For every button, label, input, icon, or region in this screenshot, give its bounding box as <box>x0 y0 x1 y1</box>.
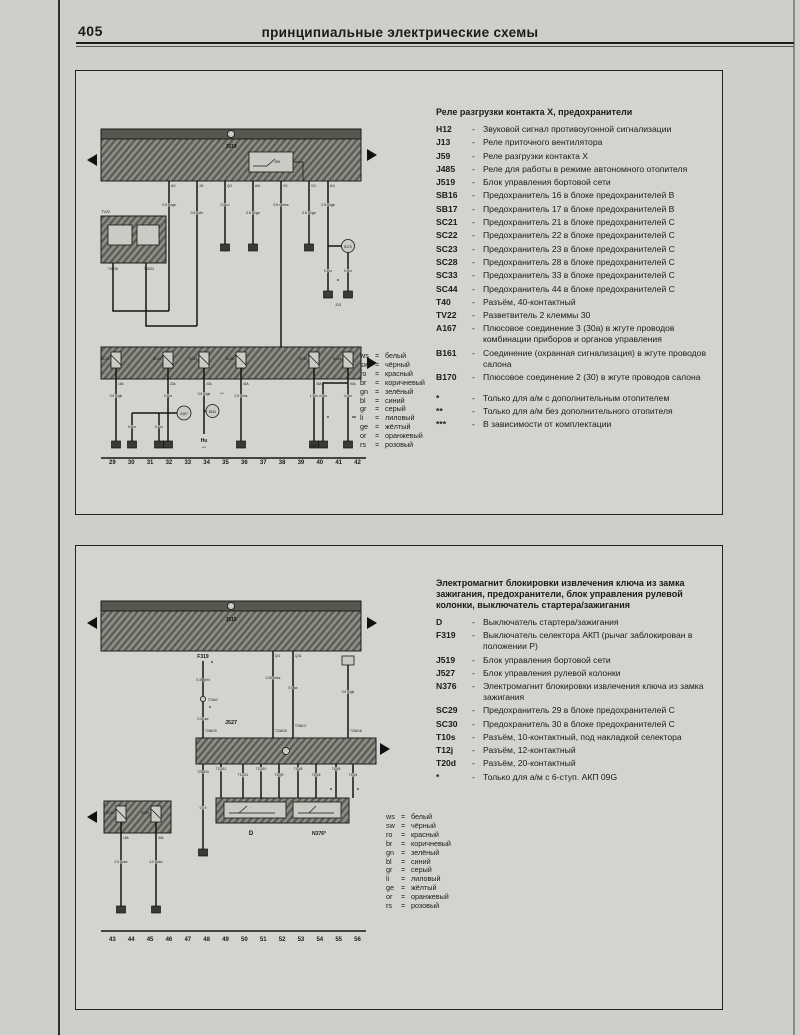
wire-label: 2.5 ro/sw <box>115 860 129 864</box>
legend-dash: - <box>472 270 483 281</box>
svg-text:F319: F319 <box>197 654 209 660</box>
legend-desc: Блок управления бортовой сети <box>483 655 720 666</box>
wire-color-code: rs <box>360 441 375 450</box>
track-number: 49 <box>222 937 229 943</box>
fuse-label: SC23 <box>189 357 197 361</box>
wire-label: 0.5 ro/ge <box>246 211 260 215</box>
legend-dash: - <box>472 668 483 679</box>
legend-title: Реле разгрузки контакта X, предохранител… <box>436 107 720 118</box>
wire-label: 1.5 ro <box>310 394 318 398</box>
legend-row: D - Выключатель стартера/зажигания <box>436 617 720 628</box>
fuse-amp: 50A <box>350 382 357 386</box>
svg-text:*: * <box>337 279 339 285</box>
wire-label: 0.35 ro/ws <box>266 676 281 680</box>
note-mark: *** <box>436 419 472 430</box>
track-number: 50 <box>241 937 248 943</box>
continuation-arrow-right-icon <box>367 617 377 629</box>
legend-desc: Реле разгрузки контакта X <box>483 151 720 162</box>
legend-dash: - <box>472 772 483 783</box>
wiring-diagram-1: J519 J59 A/1 J/3 Q/1 A/6 V/1 V/2 A/4 <box>81 86 391 506</box>
legend-row: SC22 - Предохранитель 22 в блоке предохр… <box>436 230 720 241</box>
wire-color-row: rs = розовый <box>360 441 425 450</box>
wire-color-name: розовый <box>411 902 439 911</box>
legend-desc: Разъём, 10-контактный, под накладкой сел… <box>483 732 720 743</box>
legend-row: B170 - Плюсовое соединение 2 (30) в жгут… <box>436 372 720 383</box>
left-drop <box>199 764 208 856</box>
note-desc: Только для а/м с дополнительным отопител… <box>483 393 720 404</box>
legend-desc: Электромагнит блокировки извлечения ключ… <box>483 681 720 703</box>
connector-label: T10s/2 <box>208 698 218 702</box>
legend-dash: - <box>472 406 483 417</box>
variant-mark: * <box>330 788 332 794</box>
terminal-box <box>237 441 246 448</box>
terminal-box <box>164 441 173 448</box>
legend-dash: - <box>472 137 483 148</box>
wire-color-legend: ws = белый sw = чёрный ro = красный br =… <box>360 352 425 450</box>
fuse-band: SC21 SC22 SC23 SC28 SC33 SC44 15A 23A 23… <box>101 347 377 386</box>
track-number: 48 <box>203 937 210 943</box>
terminal-box <box>128 441 137 448</box>
legend-desc: Выключатель стартера/зажигания <box>483 617 720 628</box>
wire-label: 0.5 ro/ge <box>302 211 316 215</box>
continuation-arrow-right-icon <box>367 149 377 161</box>
legend-2: Электромагнит блокировки извлечения ключ… <box>436 578 720 785</box>
legend-row: SC21 - Предохранитель 21 в блоке предохр… <box>436 217 720 228</box>
legend-desc: Предохранитель 16 в блоке предохранителе… <box>483 190 720 201</box>
legend-dash: - <box>472 257 483 268</box>
relay-j485-label: J485 <box>309 444 317 448</box>
legend-desc: Соединение (охранная сигнализация) в жгу… <box>483 348 720 370</box>
legend-entries: H12 - Звуковой сигнал противоугонной сиг… <box>436 124 720 383</box>
terminal-box <box>344 291 353 298</box>
fuse-label: SC29 <box>106 811 114 815</box>
legend-term: J485 <box>436 164 472 175</box>
variant-mark: ** <box>352 416 356 422</box>
track-number: 56 <box>354 937 361 943</box>
legend-term: SC29 <box>436 705 472 716</box>
legend-term: T10s <box>436 732 472 743</box>
legend-desc: Разъём, 40-контактный <box>483 297 720 308</box>
connector-label: T12j/11 <box>238 773 249 777</box>
legend-dash: - <box>472 310 483 321</box>
wire-label: 4.0 ro <box>344 394 352 398</box>
svg-text:0.5 ro: 0.5 ro <box>344 269 352 273</box>
pin-label: A/4 <box>330 184 335 188</box>
wire-color-code: rs <box>386 902 401 911</box>
fuse-label: SC44 <box>333 357 341 361</box>
legend-desc: Предохранитель 33 в блоке предохранителе… <box>483 270 720 281</box>
legend-row: T20d - Разъём, 20-контактный <box>436 758 720 769</box>
legend-dash: - <box>472 190 483 201</box>
track-numbers: 2930313233343536373839404142 <box>109 460 361 466</box>
continuation-arrow-right-icon <box>380 743 390 755</box>
legend-term: T12j <box>436 745 472 756</box>
terminal-box <box>344 441 353 448</box>
connector-label: T12j/4 <box>349 773 358 777</box>
band-wires <box>113 181 348 347</box>
legend-row: T40 - Разъём, 40-контактный <box>436 297 720 308</box>
legend-term: SC23 <box>436 244 472 255</box>
legend-dash: - <box>472 164 483 175</box>
wire-color-name: розовый <box>385 441 413 450</box>
track-number: 43 <box>109 937 116 943</box>
track-number: 30 <box>128 460 135 466</box>
legend-term: SC28 <box>436 257 472 268</box>
svg-text:A167: A167 <box>180 412 188 416</box>
variant-mark: * <box>211 661 213 667</box>
connector-label: T12j/8 <box>294 767 303 771</box>
pin-label: A/6 <box>255 184 260 188</box>
legend-term: T20d <box>436 758 472 769</box>
fuse-amp: 35A <box>316 382 323 386</box>
legend-dash: - <box>472 230 483 241</box>
track-number: 31 <box>147 460 154 466</box>
fuse-amp: 30A <box>158 836 165 840</box>
legend-desc: Блок управления бортовой сети <box>483 177 720 188</box>
legend-desc: Предохранитель 29 в блоке предохранителе… <box>483 705 720 716</box>
legend-term: SB17 <box>436 204 472 215</box>
unit-label: J527 <box>225 720 237 726</box>
legend-row: J519 - Блок управления бортовой сети <box>436 177 720 188</box>
fuse-label: SC22 <box>153 357 161 361</box>
legend-row: J59 - Реле разгрузки контакта X <box>436 151 720 162</box>
legend-dash: - <box>472 745 483 756</box>
legend-row: A167 - Плюсовое соединение 3 (30a) в жгу… <box>436 323 720 345</box>
legend-desc: Предохранитель 44 в блоке предохранителе… <box>483 284 720 295</box>
fuse-amp: 44A <box>243 382 250 386</box>
pin-label: V/1 <box>283 184 288 188</box>
wire-label: 0.5 ro/ge <box>342 690 355 694</box>
legend-row: SC44 - Предохранитель 44 в блоке предохр… <box>436 284 720 295</box>
variant-mark: * <box>209 706 211 712</box>
svg-text:0.5 ro: 0.5 ro <box>324 269 332 273</box>
terminal-box <box>199 849 208 856</box>
wire-label: 0.35 sw <box>198 717 210 721</box>
inline-connector-icon <box>200 696 205 701</box>
legend-term: A167 <box>436 323 472 345</box>
legend-desc: Разъём, 20-контактный <box>483 758 720 769</box>
ignition-switch-label: D <box>249 831 254 837</box>
legend-dash: - <box>472 681 483 703</box>
wiring-diagram-2: J519 Q/1 Q/11 0.35 ro/ws 0.5 sw F319 * 0… <box>81 561 391 986</box>
pin-label: Q/1 <box>275 654 280 658</box>
legend-desc: Предохранитель 28 в блоке предохранителе… <box>483 257 720 268</box>
splitter-tv22: TV22 T40/18 T40/23 <box>101 210 166 271</box>
header-rule-thin <box>76 46 794 47</box>
connector-label: T20d/16 <box>275 729 287 733</box>
fuse-drops: A167 B161 <box>112 368 353 448</box>
pin-label: Q/11 <box>295 654 302 658</box>
track-number: 54 <box>316 937 323 943</box>
fuse-label: SC33 <box>299 357 307 361</box>
wire-label: 0.5 ro <box>128 425 136 429</box>
legend-dash: - <box>472 705 483 716</box>
legend-term: N376 <box>436 681 472 703</box>
legend-dash: - <box>472 244 483 255</box>
legend-term: J519 <box>436 177 472 188</box>
legend-row: SC30 - Предохранитель 30 в блоке предохр… <box>436 719 720 730</box>
terminal-box <box>319 441 328 448</box>
legend-dash: - <box>472 719 483 730</box>
wire-label: 0.5 ro/ge <box>198 392 211 396</box>
legend-dash: - <box>472 655 483 666</box>
pin-label: A/1 <box>171 184 176 188</box>
terminal-box <box>221 244 230 251</box>
legend-dash: - <box>472 419 483 430</box>
legend-desc: Предохранитель 17 в блоке предохранителе… <box>483 204 720 215</box>
wire-label: 0.5 ro/gn <box>110 394 123 398</box>
wire-label: 0.5 ro/br <box>190 211 204 215</box>
connector-label: T20d/20 <box>197 770 209 774</box>
track-number: 29 <box>109 460 116 466</box>
legend-term: * <box>436 772 472 783</box>
legend-term: J527 <box>436 668 472 679</box>
track-number: 45 <box>147 937 154 943</box>
unit-label: J519 <box>225 617 236 623</box>
terminal-box <box>305 244 314 251</box>
legend-term: SC44 <box>436 284 472 295</box>
legend-dash: - <box>472 372 483 383</box>
legend-desc: Реле приточного вентилятора <box>483 137 720 148</box>
track-number: 51 <box>260 937 267 943</box>
equals-sign: = <box>375 441 385 450</box>
track-number: 38 <box>279 460 286 466</box>
legend-row: SC33 - Предохранитель 33 в блоке предохр… <box>436 270 720 281</box>
legend-term: J519 <box>436 655 472 666</box>
note-mark: ** <box>436 406 472 417</box>
legend-row: TV22 - Разветвитель 2 клеммы 30 <box>436 310 720 321</box>
track-number: 53 <box>298 937 305 943</box>
legend-desc: Звуковой сигнал противоугонной сигнализа… <box>483 124 720 135</box>
legend-row: SB16 - Предохранитель 16 в блоке предохр… <box>436 190 720 201</box>
note-mark: * <box>436 393 472 404</box>
legend-term: F319 <box>436 630 472 652</box>
continuation-arrow-left-icon <box>87 154 97 166</box>
legend-row: J13 - Реле приточного вентилятора <box>436 137 720 148</box>
continuation-arrow-left-icon <box>87 811 97 823</box>
legend-title: Электромагнит блокировки извлечения ключ… <box>436 578 720 611</box>
legend-row: N376 - Электромагнит блокировки извлечен… <box>436 681 720 703</box>
note-row: *** - В зависимости от комплектации <box>436 419 720 430</box>
variant-mark: * <box>357 788 359 794</box>
legend-row: B161 - Соединение (охранная сигнализация… <box>436 348 720 370</box>
fuse-amp: 15A <box>123 836 130 840</box>
legend-dash: - <box>472 732 483 743</box>
diagram-frame-1: J519 J59 A/1 J/3 Q/1 A/6 V/1 V/2 A/4 <box>75 70 723 515</box>
equals-sign: = <box>401 902 411 911</box>
track-numbers: 4344454647484950515253545556 <box>109 937 361 943</box>
svg-text:B161: B161 <box>209 410 217 414</box>
legend-dash: - <box>472 348 483 370</box>
legend-desc: Плюсовое соединение 2 (30) в жгуте прово… <box>483 372 720 383</box>
track-number: 44 <box>128 937 135 943</box>
variant-mark: * <box>327 416 329 422</box>
legend-term: J13 <box>436 137 472 148</box>
legend-dash: - <box>472 284 483 295</box>
legend-term: SC33 <box>436 270 472 281</box>
terminal-box <box>152 906 161 913</box>
wire-color-row: rs = розовый <box>386 902 451 911</box>
svg-text:B170: B170 <box>344 245 352 249</box>
legend-row: J485 - Реле для работы в режиме автономн… <box>436 164 720 175</box>
legend-row: SB17 - Предохранитель 17 в блоке предохр… <box>436 204 720 215</box>
legend-dash: - <box>472 758 483 769</box>
solenoid-label: N376* <box>312 831 326 837</box>
pin-label: Q/1 <box>227 184 232 188</box>
continuation-arrow-left-icon <box>87 617 97 629</box>
terminal-box <box>117 906 126 913</box>
legend-desc: Плюсовое соединение 3 (30a) в жгуте пров… <box>483 323 720 345</box>
terminal-box <box>324 291 333 298</box>
note-row: * - Только для а/м с дополнительным отоп… <box>436 393 720 404</box>
legend-notes: * - Только для а/м с дополнительным отоп… <box>436 393 720 431</box>
track-number: 39 <box>298 460 305 466</box>
track-number: 41 <box>335 460 342 466</box>
wire-label: 0.5 ro <box>155 425 163 429</box>
pin-label: V/2 <box>311 184 316 188</box>
track-number: 36 <box>241 460 248 466</box>
legend-term: SB16 <box>436 190 472 201</box>
legend-term: TV22 <box>436 310 472 321</box>
legend-desc: Реле для работы в режиме автономного ото… <box>483 164 720 175</box>
connector-label: T12j/5 <box>332 767 341 771</box>
legend-desc: Только для а/м с 6-ступ. АКП 09G <box>483 772 720 783</box>
legend-desc: Блок управления рулевой колонки <box>483 668 720 679</box>
legend-row: SC23 - Предохранитель 23 в блоке предохр… <box>436 244 720 255</box>
legend-desc: Предохранитель 30 в блоке предохранителе… <box>483 719 720 730</box>
legend-row: J519 - Блок управления бортовой сети <box>436 655 720 666</box>
unit-symbol-icon <box>228 603 235 610</box>
switch-f319-chain: F319 * 0.35 gr/bl T10s/2 * 0.35 sw <box>196 654 218 721</box>
connector-label: T12j/10 <box>256 767 267 771</box>
note-desc: Только для а/м без дополнительного отопи… <box>483 406 720 417</box>
connector-label: T40/18 <box>108 267 118 271</box>
legend-1: Реле разгрузки контакта X, предохранител… <box>436 107 720 433</box>
wire-label: 4.0 ro/sw <box>150 860 164 864</box>
legend-dash: - <box>472 177 483 188</box>
variant-mark: *** <box>220 392 224 396</box>
legend-dash: - <box>472 393 483 404</box>
legend-row: H12 - Звуковой сигнал противоугонной сиг… <box>436 124 720 135</box>
terminal-box <box>249 244 258 251</box>
wire-label: 0.35 gr/bl <box>196 678 210 682</box>
track-number: 34 <box>203 460 210 466</box>
legend-desc: Разъём, 12-контактный <box>483 745 720 756</box>
track-number: 33 <box>184 460 191 466</box>
fuse-label: SC28 <box>226 357 234 361</box>
wire-label: 2.5 ro/ge <box>321 203 335 207</box>
legend-term: H12 <box>436 124 472 135</box>
legend-term: B161 <box>436 348 472 370</box>
connector-label: T20d/19 <box>205 729 217 733</box>
fuse-amp: 23A <box>170 382 177 386</box>
legend-dash: - <box>472 617 483 628</box>
legend-row: SC29 - Предохранитель 29 в блоке предохр… <box>436 705 720 716</box>
legend-desc: Предохранитель 23 в блоке предохранителе… <box>483 244 720 255</box>
terminal-box <box>112 441 121 448</box>
terminal-hu-label: Hu <box>201 438 208 444</box>
page-binding-line <box>58 0 60 1035</box>
legend-term: SC22 <box>436 230 472 241</box>
legend-row: J527 - Блок управления рулевой колонки <box>436 668 720 679</box>
legend-desc: Выключатель селектора АКП (рычаг заблоки… <box>483 630 720 652</box>
wire-label: 0.5 ro <box>164 394 172 398</box>
legend-term: T40 <box>436 297 472 308</box>
legend-row: * - Только для а/м с 6-ступ. АКП 09G <box>436 772 720 783</box>
wire-color-legend: ws = белый sw = чёрный ro = красный br =… <box>386 813 451 911</box>
fuse-label: SC21 <box>101 357 109 361</box>
connector-label: T20d/18 <box>350 729 362 733</box>
track-number: 46 <box>166 937 173 943</box>
pin-label: J/3 <box>199 184 203 188</box>
header-rule <box>76 42 794 44</box>
page-title: принципиальные электрические схемы <box>120 25 680 40</box>
legend-entries: D - Выключатель стартера/зажигания F319 … <box>436 617 720 783</box>
wire-label: 0.5 sw <box>288 686 298 690</box>
track-number: 42 <box>354 460 361 466</box>
connector-label: T12j/12 <box>216 767 227 771</box>
legend-desc: Разветвитель 2 клеммы 30 <box>483 310 720 321</box>
wire-label: 0.5 sw/ws <box>273 203 289 207</box>
unit-symbol-icon <box>228 131 235 138</box>
legend-dash: - <box>472 323 483 345</box>
legend-term: SC30 <box>436 719 472 730</box>
legend-row: SC28 - Предохранитель 28 в блоке предохр… <box>436 257 720 268</box>
relay-label: J59 <box>274 160 280 164</box>
legend-term: B170 <box>436 372 472 383</box>
legend-dash: - <box>472 151 483 162</box>
legend-row: T10s - Разъём, 10-контактный, под наклад… <box>436 732 720 743</box>
legend-dash: - <box>472 630 483 652</box>
legend-dash: - <box>472 124 483 135</box>
note-row: ** - Только для а/м без дополнительного … <box>436 406 720 417</box>
fuse-amp: 15A <box>118 382 125 386</box>
legend-desc: Предохранитель 22 в блоке предохранителе… <box>483 230 720 241</box>
track-number: 47 <box>184 937 191 943</box>
legend-dash: - <box>472 297 483 308</box>
wire-label: 0.5 li <box>200 806 207 810</box>
fuse-band-sc29-sc30: SC29 SC30 15A 30A <box>87 801 171 913</box>
connector-label: T40/23 <box>144 267 154 271</box>
page-number: 405 <box>78 23 103 39</box>
fuse-amp: 23A <box>206 382 213 386</box>
legend-dash: - <box>472 204 483 215</box>
unit-symbol-icon <box>283 748 290 755</box>
legend-desc: Предохранитель 21 в блоке предохранителе… <box>483 217 720 228</box>
connector-label: T12j/6 <box>312 773 321 777</box>
track-number: 55 <box>335 937 342 943</box>
legend-term: SC21 <box>436 217 472 228</box>
track-number: 35 <box>222 460 229 466</box>
wire-label: 2.5 ro/ws <box>235 394 248 398</box>
legend-row: F319 - Выключатель селектора АКП (рычаг … <box>436 630 720 652</box>
note-desc: В зависимости от комплектации <box>483 419 720 430</box>
continuation-box <box>342 656 354 665</box>
page-edge-line <box>793 0 795 1035</box>
track-number: 32 <box>166 460 173 466</box>
relay-box <box>249 152 293 172</box>
wire-label: 2.5 ro/ge <box>162 203 176 207</box>
diagram-frame-2: J519 Q/1 Q/11 0.35 ro/ws 0.5 sw F319 * 0… <box>75 545 723 1010</box>
track-number: 52 <box>279 937 286 943</box>
control-unit-band-j519: J519 <box>87 601 377 651</box>
legend-dash: - <box>472 217 483 228</box>
control-unit-band-j519: J519 J59 <box>87 129 377 181</box>
svg-text:J13: J13 <box>335 303 341 307</box>
connector-label: T12j/9 <box>275 773 284 777</box>
ignition-lock-box: D N376* <box>216 798 349 837</box>
fuse-label: SC30 <box>141 811 149 815</box>
